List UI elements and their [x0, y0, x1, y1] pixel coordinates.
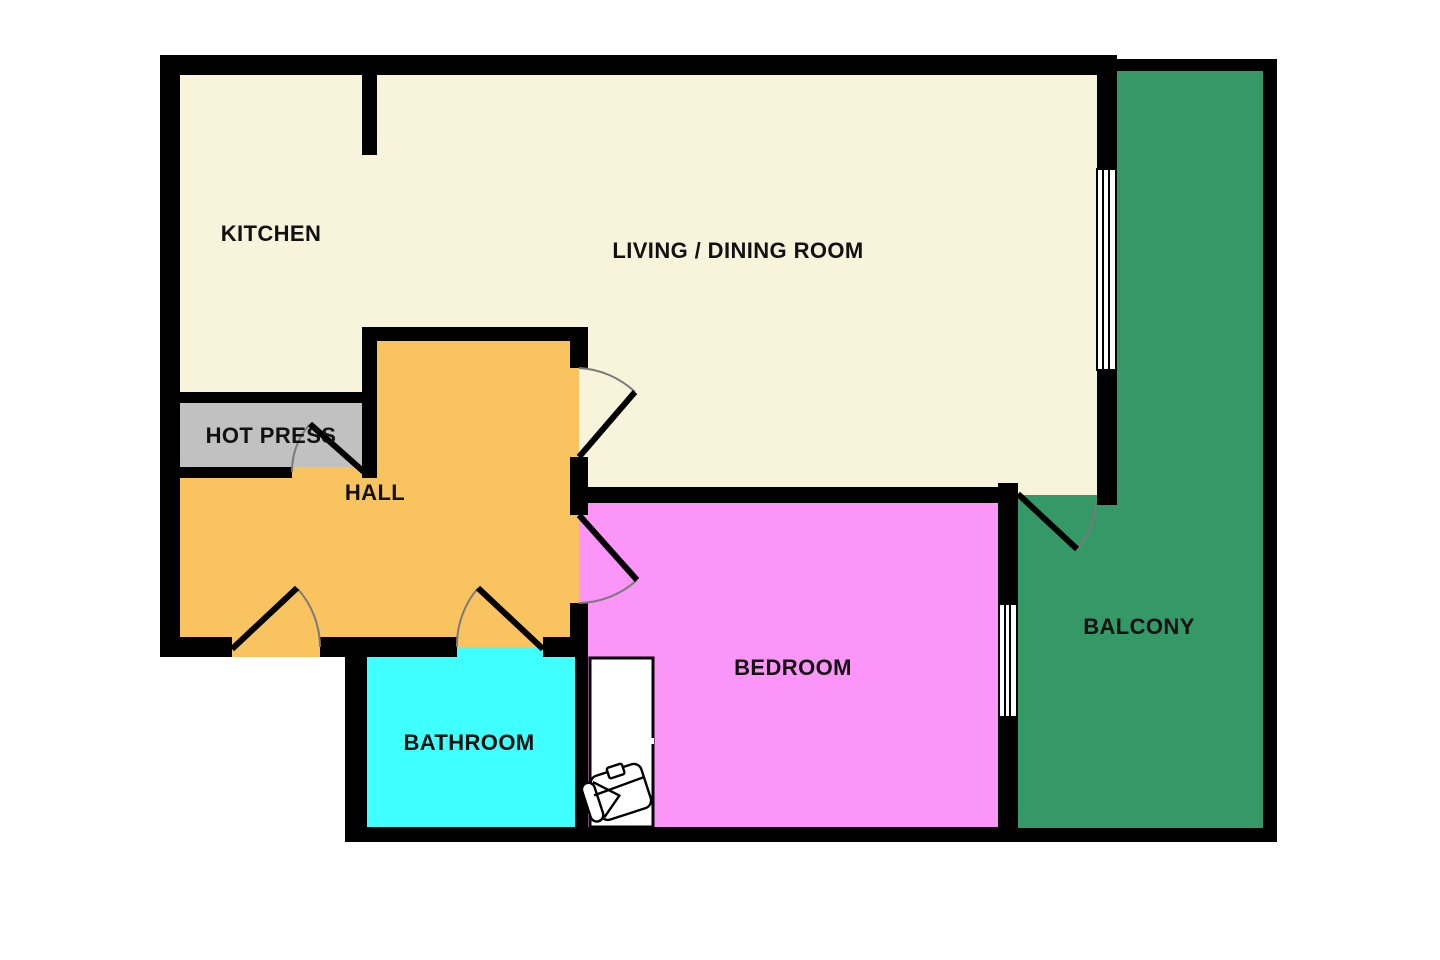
hot-press-label: HOT PRESS	[206, 423, 337, 449]
bathroom-door	[457, 588, 543, 649]
living-room-door	[579, 368, 635, 457]
kitchen-label: KITCHEN	[221, 221, 322, 247]
living-dining-label: LIVING / DINING ROOM	[612, 238, 863, 264]
floorplan: KITCHEN LIVING / DINING ROOM HOT PRESS H…	[0, 0, 1440, 960]
entrance-door	[232, 588, 320, 649]
bedroom-door	[579, 515, 637, 603]
door-and-furniture-overlay	[0, 0, 1440, 960]
hall-label: HALL	[345, 480, 405, 506]
bathroom-label: BATHROOM	[403, 730, 534, 756]
bedroom-label: BEDROOM	[734, 655, 852, 681]
balcony-label: BALCONY	[1083, 614, 1195, 640]
balcony-door	[1018, 494, 1096, 549]
single-bed	[578, 658, 653, 827]
